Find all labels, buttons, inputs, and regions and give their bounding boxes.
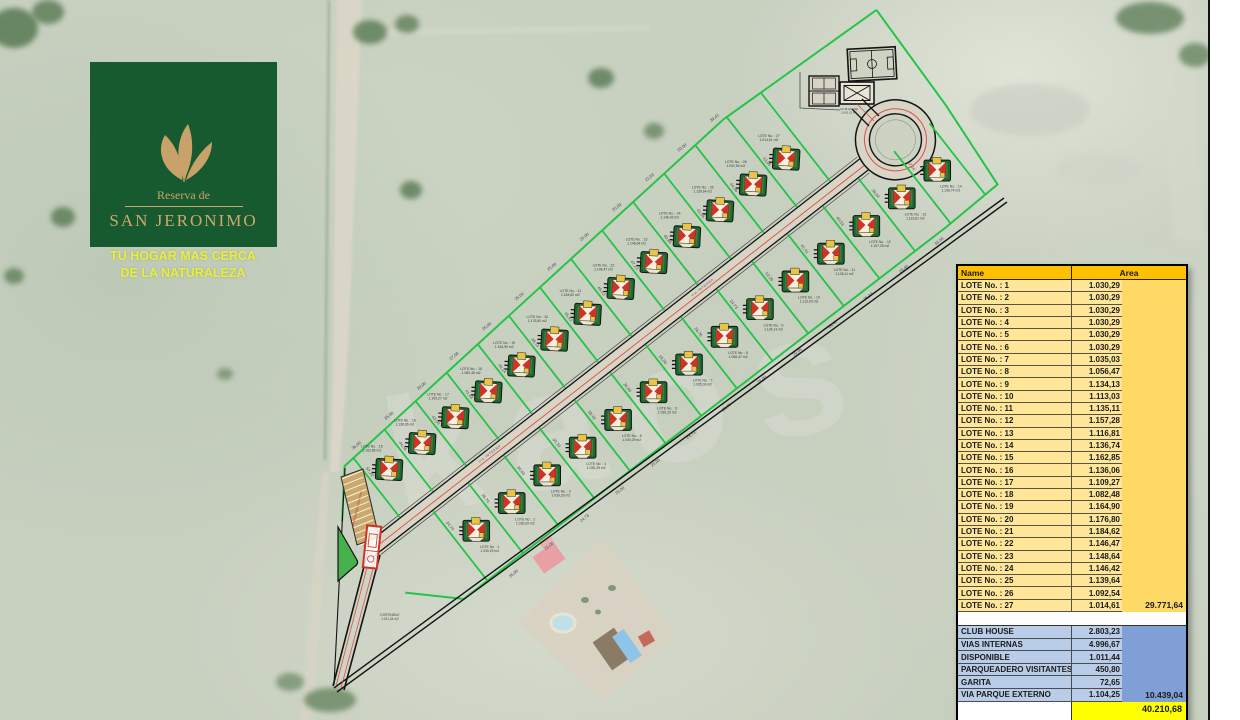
lot-area-label: LOTE No. : 71.035,03 m2 xyxy=(693,379,713,387)
slogan-line2: DE LA NATURALEZA xyxy=(83,265,283,282)
row-area-cell: 1.135,11 xyxy=(1072,403,1124,415)
row-area-cell: 1.104,25 xyxy=(1072,689,1124,702)
lot-area-label: LOTE No. : 161.136,06 m2 xyxy=(394,419,416,427)
dimension-label: 40,53 xyxy=(835,215,846,227)
dimension-label: 26,00 xyxy=(481,321,493,332)
row-name-cell: LOTE No. : 3 xyxy=(958,305,1072,317)
house-icon xyxy=(707,324,737,348)
row-area-cell: 1.136,74 xyxy=(1072,440,1124,452)
row-area-cell: 1.139,64 xyxy=(1072,575,1124,587)
lot-area-label: LOTE No. : 31.030,29 m2 xyxy=(551,490,571,498)
row-name-cell: CLUB HOUSE xyxy=(958,626,1072,639)
row-name-cell: LOTE No. : 17 xyxy=(958,477,1072,489)
logo-divider xyxy=(125,206,243,207)
row-area-cell: 1.148,64 xyxy=(1072,551,1124,563)
grand-total-row: 40.210,68 xyxy=(958,702,1186,720)
lot-area-label: LOTE No. : 81.056,47 m2 xyxy=(728,351,748,359)
dimension-label: 41,41 xyxy=(800,243,811,255)
lot-area-label: LOTE No. : 91.134,13 m2 xyxy=(764,323,784,331)
row-name-cell: LOTE No. : 22 xyxy=(958,538,1072,550)
row-name-cell: LOTE No. : 2 xyxy=(958,292,1072,304)
lot-area-label: LOTE No. : 41.030,29 m2 xyxy=(586,462,606,470)
lot-area-label: LOTE No. : 111.135,11 m2 xyxy=(834,268,856,276)
house-icon xyxy=(636,379,666,403)
row-name-cell: LOTE No. : 16 xyxy=(958,464,1072,476)
row-area-cell: 1.157,28 xyxy=(1072,415,1124,427)
lot-area-label: LOTE No. : 101.113,03 m2 xyxy=(798,296,820,304)
lot-area-label: LOTE No. : 271.014,61 m2 xyxy=(758,134,780,142)
dimension-label: 39,41 xyxy=(709,112,721,123)
photo-pool xyxy=(551,614,575,632)
row-area-cell: 1.030,29 xyxy=(1072,305,1124,317)
row-name-cell: VIA PARQUE EXTERNO xyxy=(958,689,1072,702)
dimension-label: 25,03 xyxy=(611,201,623,212)
row-name-cell: DISPONIBLE xyxy=(958,651,1072,664)
row-name-cell: LOTE No. : 13 xyxy=(958,428,1072,440)
row-area-cell: 1.176,80 xyxy=(1072,514,1124,526)
house-icon xyxy=(672,351,702,375)
row-name-cell: LOTE No. : 10 xyxy=(958,391,1072,403)
dimension-label: 40,86 xyxy=(663,233,674,245)
house-icon xyxy=(405,429,437,454)
area-table: Name Area LOTE No. : 11.030,29LOTE No. :… xyxy=(956,264,1188,720)
house-icon xyxy=(570,300,602,325)
row-name-cell: LOTE No. : 23 xyxy=(958,551,1072,563)
lot-area-label: LOTE No. : 131.116,81 m2 xyxy=(905,212,927,220)
slogan: TU HOGAR MAS CERCA DE LA NATURALEZA xyxy=(83,248,283,282)
dimension-label: 46,03 xyxy=(596,285,607,297)
house-icon xyxy=(495,490,525,514)
row-name-cell: LOTE No. : 14 xyxy=(958,440,1072,452)
dimension-label: 25,00 xyxy=(578,231,590,242)
leaves-icon xyxy=(149,110,219,184)
club-label: CLUB HOUSE2.803,23 m2 xyxy=(840,107,858,114)
slogan-line1: TU HOGAR MAS CERCA xyxy=(83,248,283,265)
dimension-label: 57,20 xyxy=(365,466,376,478)
grand-total-cell: 40.210,68 xyxy=(1072,702,1186,720)
dimension-label: 42,29 xyxy=(764,271,775,283)
lot-area-label: LOTE No. : 51.030,29 m2 xyxy=(622,434,642,442)
name-header-cell: Name xyxy=(958,266,1072,279)
row-area-cell: 1.146,42 xyxy=(1072,563,1124,575)
lot-area-label: LOTE No. : 201.176,80 m2 xyxy=(526,315,548,323)
house-icon xyxy=(537,326,569,351)
house-icon xyxy=(438,404,470,429)
lot-area-label: LOTE No. : 171.109,27 m2 xyxy=(427,393,449,401)
row-name-cell: LOTE No. : 8 xyxy=(958,366,1072,378)
lot-area-label: LOTE No. : 181.082,48 m2 xyxy=(460,367,482,375)
lot-area-label: LOTE No. : 141.136,74 m2 xyxy=(940,185,962,193)
row-name-cell: LOTE No. : 27 xyxy=(958,600,1072,612)
row-name-cell: VIAS INTERNAS xyxy=(958,639,1072,652)
dimension-label: 47,23 xyxy=(629,259,640,271)
row-name-cell: LOTE No. : 1 xyxy=(958,280,1072,292)
row-area-cell: 1.092,54 xyxy=(1072,587,1124,599)
tennis-courts xyxy=(809,76,839,106)
row-area-cell: 450,80 xyxy=(1072,664,1124,677)
row-area-cell: 1.030,29 xyxy=(1072,280,1124,292)
house-icon xyxy=(920,157,950,181)
row-name-cell: LOTE No. : 4 xyxy=(958,317,1072,329)
aerial-photo: kaos xyxy=(0,0,1240,720)
row-name-cell: LOTE No. : 7 xyxy=(958,354,1072,366)
lot-area-label: LOTE No. : 121.157,28 m2 xyxy=(869,240,891,248)
lot-area-label: LOTE No. : 21.030,29 m2 xyxy=(515,517,535,525)
lots-subtotal-cell: 29.771,64 xyxy=(1122,280,1186,612)
row-name-cell: LOTE No. : 20 xyxy=(958,514,1072,526)
row-area-cell: 1.030,29 xyxy=(1072,292,1124,304)
house-icon xyxy=(885,185,915,209)
row-area-cell: 72,65 xyxy=(1072,676,1124,689)
house-icon xyxy=(603,274,635,299)
row-area-cell: 1.030,29 xyxy=(1072,317,1124,329)
house-icon xyxy=(636,248,668,273)
logo-brand-line1: Reserva de xyxy=(157,188,210,203)
row-area-cell: 1.164,90 xyxy=(1072,501,1124,513)
row-name-cell: LOTE No. : 6 xyxy=(958,341,1072,353)
dimension-label: 41,06 xyxy=(696,207,707,219)
row-name-cell: LOTE No. : 18 xyxy=(958,489,1072,501)
row-area-cell: 1.030,29 xyxy=(1072,341,1124,353)
house-icon xyxy=(530,462,560,486)
row-area-cell: 1.030,29 xyxy=(1072,329,1124,341)
dimension-label: 43,95 xyxy=(762,156,773,168)
row-area-cell: 1.035,03 xyxy=(1072,354,1124,366)
row-area-cell: 1.162,85 xyxy=(1072,452,1124,464)
row-area-cell: 1.136,06 xyxy=(1072,464,1124,476)
table-gap-row xyxy=(958,612,1186,626)
logo-brand-line2: SAN JERONIMO xyxy=(109,211,257,231)
table-header-row: Name Area xyxy=(958,266,1186,280)
row-name-cell: GARITA xyxy=(958,676,1072,689)
row-area-cell: 1.134,13 xyxy=(1072,378,1124,390)
dimension-label: 25,00 xyxy=(513,291,525,302)
house-icon xyxy=(371,455,403,480)
soccer-field xyxy=(847,47,897,81)
dimension-label: 26,00 xyxy=(508,568,520,579)
lot-area-label: LOTE No. : 191.164,90 m2 xyxy=(493,341,515,349)
row-name-cell: LOTE No. : 25 xyxy=(958,575,1072,587)
house-icon xyxy=(849,213,879,237)
logo-panel: Reserva de SAN JERONIMO xyxy=(90,62,277,247)
row-area-cell: 1.082,48 xyxy=(1072,489,1124,501)
lot-area-label: LOTE No. : 11.030,29 m2 xyxy=(480,545,500,553)
row-area-cell: 1.014,61 xyxy=(1072,600,1124,612)
dimension-label: 39,02 xyxy=(871,188,882,200)
house-icon xyxy=(814,240,844,264)
row-name-cell: LOTE No. : 21 xyxy=(958,526,1072,538)
house-icon xyxy=(504,352,536,377)
house-icon xyxy=(471,378,503,403)
row-area-cell: 1.184,62 xyxy=(1072,526,1124,538)
row-area-cell: 2.803,23 xyxy=(1072,626,1124,639)
row-area-cell: 1.011,44 xyxy=(1072,651,1124,664)
dimension-label: 25,00 xyxy=(546,261,558,272)
common-subtotal-cell: 10.439,04 xyxy=(1122,626,1186,702)
dimension-label: 22,03 xyxy=(644,172,656,183)
house-icon xyxy=(669,223,701,248)
row-name-cell: PARQUEADERO VISITANTES xyxy=(958,664,1072,677)
row-area-cell: 1.056,47 xyxy=(1072,366,1124,378)
house-icon xyxy=(459,517,489,541)
row-name-cell: LOTE No. : 12 xyxy=(958,415,1072,427)
row-area-cell: 4.996,67 xyxy=(1072,639,1124,652)
house-icon xyxy=(566,434,596,458)
row-name-cell: LOTE No. : 9 xyxy=(958,378,1072,390)
dimension-label: 20,00 xyxy=(676,142,688,153)
lot-area-label: LOTE No. : 251.139,64 m2 xyxy=(692,186,714,194)
row-area-cell: 1.146,47 xyxy=(1072,538,1124,550)
row-name-cell: LOTE No. : 26 xyxy=(958,587,1072,599)
row-area-cell: 1.109,27 xyxy=(1072,477,1124,489)
grand-total-empty-cell xyxy=(958,702,1072,720)
lot-area-label: LOTE No. : 211.184,62 m2 xyxy=(560,289,582,297)
common-areas-section: CLUB HOUSE2.803,23VIAS INTERNAS4.996,67D… xyxy=(958,626,1186,702)
disponible-label: DISPONIBLE1.011,44 m2 xyxy=(380,613,399,621)
house-icon xyxy=(743,296,773,320)
plan-strip: 36,0035,0028,0027,0026,0025,0025,0025,00… xyxy=(286,0,1014,639)
house-icon xyxy=(778,268,808,292)
pavilion xyxy=(840,82,874,104)
house-icon xyxy=(735,171,767,196)
page-margin xyxy=(1208,0,1240,720)
garita xyxy=(363,525,381,568)
house-icon xyxy=(702,197,734,222)
row-area-cell: 1.113,03 xyxy=(1072,391,1124,403)
lot-area-label: LOTE No. : 151.162,85 m2 xyxy=(361,444,383,452)
row-name-cell: LOTE No. : 5 xyxy=(958,329,1072,341)
row-name-cell: LOTE No. : 19 xyxy=(958,501,1072,513)
photo-dirt-road-left xyxy=(330,0,362,472)
house-icon xyxy=(769,145,801,170)
lots-section: LOTE No. : 11.030,29LOTE No. : 21.030,29… xyxy=(958,280,1186,612)
row-name-cell: LOTE No. : 11 xyxy=(958,403,1072,415)
lot-area-label: LOTE No. : 61.030,29 m2 xyxy=(657,407,677,415)
house-icon xyxy=(601,407,631,431)
dimension-label: 45,43 xyxy=(563,311,574,323)
lot-area-label: LOTE No. : 241.146,42 m2 xyxy=(659,212,681,220)
row-name-cell: LOTE No. : 15 xyxy=(958,452,1072,464)
area-header-cell: Area xyxy=(1072,266,1186,279)
row-name-cell: LOTE No. : 24 xyxy=(958,563,1072,575)
dimension-label: 44,06 xyxy=(729,182,740,194)
lot-area-label: LOTE No. : 231.148,64 m2 xyxy=(626,237,648,245)
photo-estate xyxy=(518,535,675,702)
lot-area-label: LOTE No. : 221.146,47 m2 xyxy=(593,263,615,271)
lot-area-label: LOTE No. : 261.092,54 m2 xyxy=(725,160,747,168)
row-area-cell: 1.116,81 xyxy=(1072,428,1124,440)
